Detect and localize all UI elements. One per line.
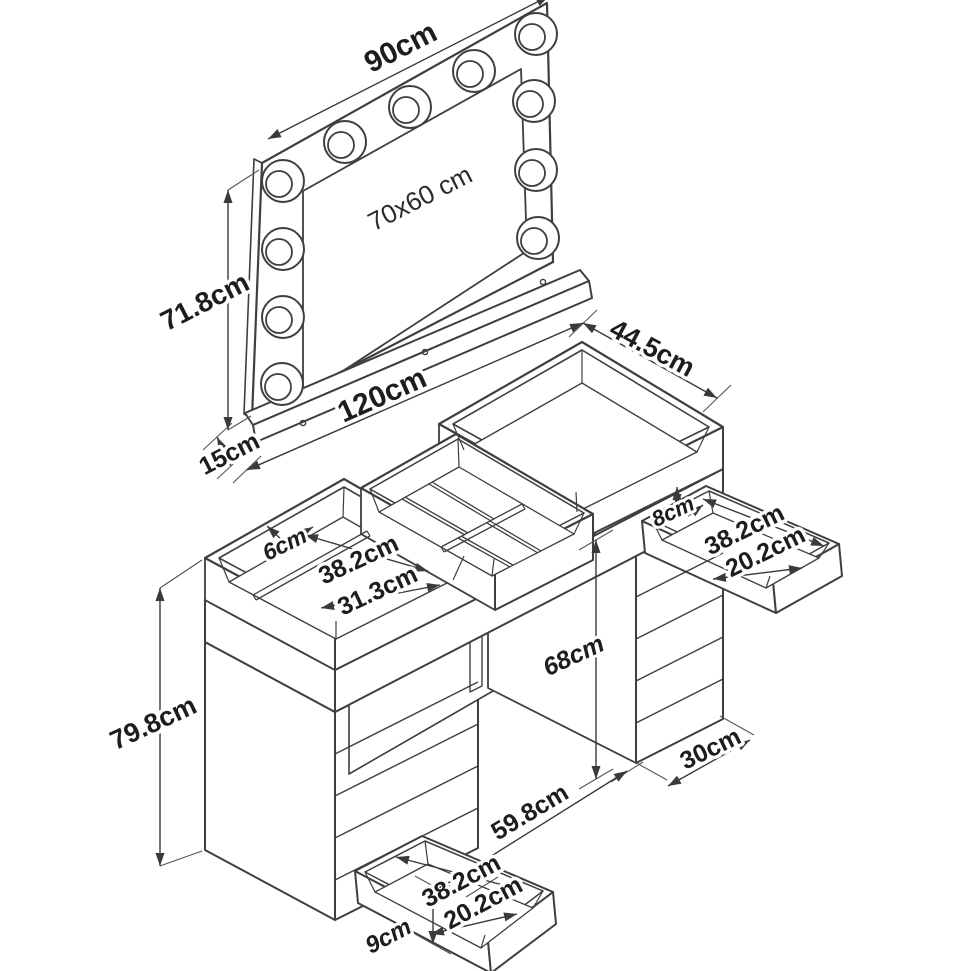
technical-drawing-page: 90cm 70x60 cm 71.8cm 15cm 120cm 44.5cm 6…: [0, 0, 970, 971]
dim-label-mirror-base-depth: 15cm: [195, 427, 265, 481]
vanity-table-dimension-drawing: 90cm 70x60 cm 71.8cm 15cm 120cm 44.5cm 6…: [0, 0, 970, 971]
dim-label-mirror-height: 71.8cm: [155, 266, 254, 337]
dim-label-table-height: 79.8cm: [105, 690, 201, 756]
